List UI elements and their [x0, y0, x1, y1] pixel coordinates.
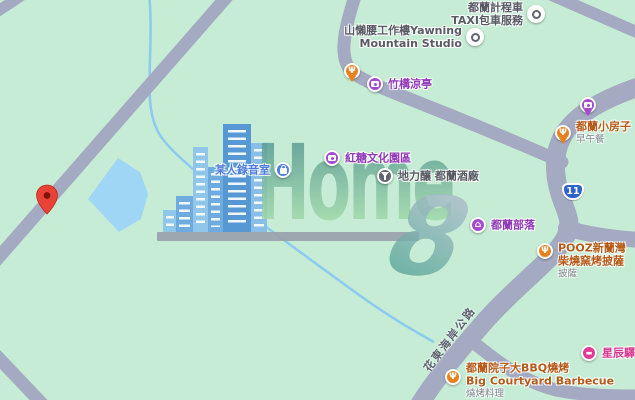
poi-category: 燒烤料理: [466, 388, 614, 400]
hotel-bed-icon: ▬: [581, 345, 597, 361]
poi-brown-sugar-culture-park[interactable]: 紅糖文化園區: [324, 150, 340, 166]
camera-glyph: [584, 102, 592, 108]
poi-dulan-winery[interactable]: 地力釀 都蘭酒廠: [377, 168, 393, 184]
generic-poi-dot-icon: [527, 5, 545, 23]
restaurant-icon: Ψ: [555, 125, 571, 141]
poi-label: 星辰驛棧: [602, 347, 635, 360]
fork-knife-glyph: Ψ: [449, 373, 457, 382]
poi-big-courtyard-bbq[interactable]: Ψ 都蘭院子大BBQ燒烤 Big Courtyard Barbecue 燒烤料理: [445, 369, 461, 385]
attraction-camera-icon: [580, 97, 596, 113]
poi-label: 都蘭小房子 早午餐: [576, 120, 631, 146]
pin-center-dot: [44, 192, 51, 199]
poi-attraction-pin[interactable]: [580, 97, 596, 113]
generic-poi-dot-icon: [466, 28, 484, 46]
poi-someones-recording-studio[interactable]: 某人錄音室: [275, 162, 291, 178]
poi-label: 紅糖文化園區: [345, 152, 411, 165]
poi-dulan-tribe[interactable]: ⌂ 都蘭部落: [470, 217, 486, 233]
bag-glyph: [280, 168, 287, 174]
poi-dulan-taxi[interactable]: 都蘭計程車TAXI包車服務: [528, 6, 544, 22]
road-bottomleft-corner: [0, 350, 49, 400]
poi-label: 某人錄音室: [215, 164, 270, 177]
restaurant-icon: Ψ: [445, 369, 461, 385]
poi-label: 山懶腰工作樓YawningMountain Studio: [344, 24, 462, 50]
fork-knife-glyph: Ψ: [348, 67, 356, 76]
attraction-camera-icon: [324, 150, 340, 166]
poi-label: 地力釀 都蘭酒廠: [398, 170, 479, 183]
poi-pooz-pizza[interactable]: Ψ POOZ新蘭灣 柴燒窯烤披薩 披薩: [537, 243, 553, 259]
drink-icon: [377, 168, 393, 184]
poi-yawning-mountain-studio[interactable]: 山懶腰工作樓YawningMountain Studio: [467, 29, 483, 45]
camera-glyph: [371, 81, 379, 87]
road-topleft-corner: [0, 0, 27, 15]
poi-bamboo-pavilion[interactable]: 竹構涼亭: [367, 76, 383, 92]
highway-11-number: 11: [566, 186, 579, 197]
cocktail-glyph: [380, 171, 390, 181]
poi-dot-ring: [471, 33, 480, 42]
highway-east-branch: [566, 228, 635, 240]
poi-category: 早午餐: [576, 133, 631, 146]
poi-dulan-small-house[interactable]: Ψ 都蘭小房子 早午餐: [555, 125, 571, 141]
map-canvas[interactable]: Home 8 花東海岸公路 11 都蘭計程車TAXI包車服務 山懶腰工作樓Yaw…: [0, 0, 635, 400]
shopping-bag-icon: [275, 162, 291, 178]
fork-knife-glyph: Ψ: [559, 129, 567, 138]
poi-star-inn[interactable]: ▬ 星辰驛棧: [581, 345, 597, 361]
poi-label: 都蘭院子大BBQ燒烤 Big Courtyard Barbecue 燒烤料理: [466, 362, 614, 400]
fork-knife-glyph: Ψ: [541, 247, 549, 256]
attraction-camera-icon: [367, 76, 383, 92]
restaurant-icon: Ψ: [344, 63, 360, 79]
pond-polygon: [88, 158, 148, 232]
map-base-layer: [0, 0, 635, 400]
restaurant-icon: Ψ: [537, 243, 553, 259]
poi-dot-ring: [532, 10, 541, 19]
poi-label: POOZ新蘭灣 柴燒窯烤披薩 披薩: [558, 242, 626, 281]
village-home-icon: ⌂: [470, 217, 486, 233]
camera-glyph: [328, 155, 336, 161]
road-topright: [547, 0, 635, 34]
poi-category: 披薩: [558, 268, 626, 281]
poi-label: 竹構涼亭: [388, 78, 432, 91]
bed-glyph: ▬: [586, 350, 593, 357]
poi-restaurant-pin[interactable]: Ψ: [344, 63, 360, 79]
house-glyph: ⌂: [475, 221, 481, 230]
poi-label: 都蘭部落: [491, 219, 535, 232]
dropped-pin-marker[interactable]: [35, 184, 59, 215]
pin-body: [37, 185, 58, 214]
